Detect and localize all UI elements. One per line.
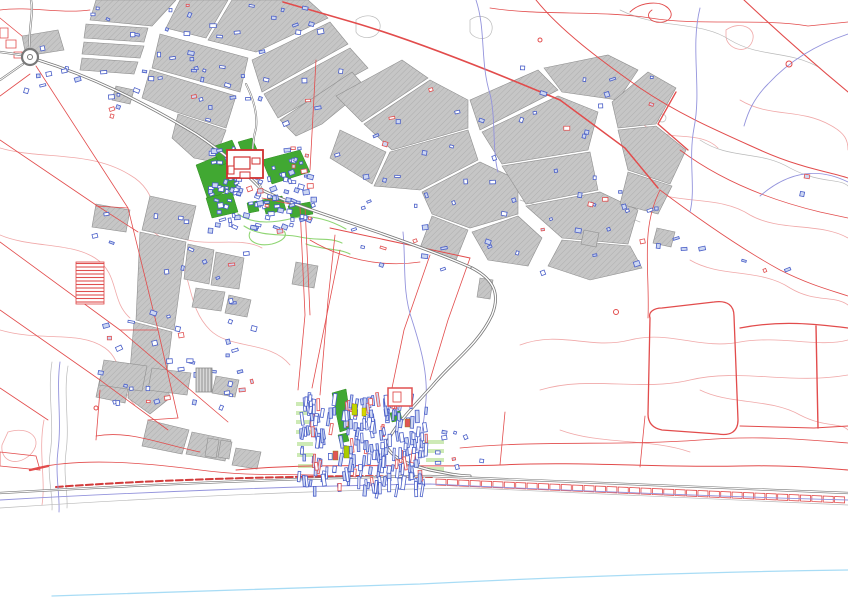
building-blue [422,150,427,155]
building-blue [410,473,414,480]
building-red [314,462,318,470]
building-blue [311,197,316,202]
building-blue [40,46,45,51]
building-red [425,434,428,442]
red-boundary [816,326,818,428]
building-blue [656,243,660,248]
building-blue [271,16,276,19]
building-blue [784,267,791,272]
gray-parcel [136,232,186,330]
building-blue [512,198,517,203]
building-blue [232,213,235,217]
building-red [110,114,114,118]
manor-wing [240,172,250,178]
building-blue [455,464,460,469]
building-blue [209,105,213,109]
building-blue [210,24,217,28]
building-blue [554,169,558,173]
building-blue [267,177,271,182]
gray-parcel [92,204,130,232]
building-blue [361,206,365,209]
building-red [369,399,373,405]
building-blue [308,395,311,401]
building-blue [258,180,263,185]
building-blue [379,263,384,268]
building-blue [158,77,162,80]
building-blue [226,354,229,357]
building-blue [165,28,169,32]
building-red [228,263,235,266]
building-red [305,99,310,102]
building-blue [368,467,372,475]
red-boundary [0,9,90,11]
building-blue [315,106,322,110]
building-blue [130,32,134,36]
building-blue [24,88,29,94]
building-blue [100,70,106,74]
building-blue [206,118,211,121]
red-boundary [430,258,470,380]
building-blue [388,478,391,491]
building-blue [212,183,218,188]
building-blue [116,401,120,406]
building-blue [349,419,352,429]
building-blue [442,430,447,434]
coast-parcel-cell [755,493,765,499]
building-blue [272,166,275,170]
layer-parcels [22,0,686,469]
building-blue [117,94,120,97]
contour-line [42,420,44,505]
gray-parcel [211,252,244,289]
building-blue [313,486,316,496]
gray-parcel [90,0,176,26]
gray-parcel [192,288,225,311]
large-red-building-inner [393,392,401,402]
manor-wing [252,158,260,164]
gray-parcel [84,24,148,42]
building-blue [415,410,419,423]
building-blue [418,451,422,458]
building-blue [422,423,427,433]
building-blue [217,161,222,164]
building-blue [192,400,196,405]
building-blue [442,435,448,440]
building-blue [329,408,333,418]
contour-line [648,190,848,238]
road-core [0,64,23,80]
coastline [52,570,848,596]
building-blue [742,259,747,262]
building-blue [142,70,147,73]
building-blue [363,174,369,179]
building-blue [480,459,484,463]
building-blue [267,195,271,199]
building-blue [382,456,385,467]
building-blue [490,180,496,184]
building-blue [178,367,184,371]
building-blue [201,77,204,82]
building-blue [283,177,288,182]
road-casing [386,268,496,476]
building-red [541,228,545,231]
building-blue [358,476,360,488]
building-red [564,126,570,130]
building-blue [515,251,519,255]
building-red [317,399,320,411]
building-blue [225,186,229,189]
building-blue [217,203,223,209]
coast-parcel-cell [778,494,788,500]
building-blue [310,414,314,421]
building-blue [284,148,291,152]
building-blue [245,97,250,100]
building-blue [492,155,497,160]
building-blue [410,416,414,428]
building-blue [241,74,245,77]
building-red [311,427,315,437]
building-blue [311,203,316,208]
red-boundary [680,150,848,218]
red-boundary [640,416,645,467]
cadastral-map-canvas[interactable] [0,0,848,599]
building-blue [225,190,228,194]
building-blue [382,178,386,182]
building-red [395,460,398,469]
building-blue [533,111,537,114]
building-blue [227,199,231,202]
roundabout-icon [22,49,38,65]
red-boundary [660,190,848,296]
gray-parcel [142,420,189,454]
building-red [186,4,189,6]
building-red [305,154,309,157]
building-red [588,202,594,207]
building-red [257,189,263,194]
building-blue [270,186,278,193]
building-blue [622,204,627,210]
building-red [640,239,646,244]
coast-parcel-cell [709,491,719,497]
building-red [250,379,253,384]
gray-parcel [82,42,144,58]
building-blue [175,326,181,332]
building-blue [98,371,104,376]
building-blue [188,51,195,56]
building-blue [115,345,122,351]
building-red [301,169,307,174]
building-blue [303,189,310,195]
building-blue [226,339,231,345]
building-blue [257,201,264,207]
building-blue [363,419,366,429]
stream [476,0,498,172]
building-blue [152,340,158,346]
building-blue [146,386,150,390]
building-blue [154,214,158,219]
building-blue [345,410,349,421]
map-viewport[interactable] [0,0,848,599]
building-blue [219,218,226,222]
greenhouse-building [76,262,104,304]
building-blue [440,267,445,271]
contour-line [540,375,848,390]
building-blue [399,433,404,443]
building-blue [317,28,324,34]
building-blue [298,184,305,190]
building-blue [191,69,196,72]
building-blue [273,196,277,201]
building-blue [133,88,140,94]
contour-line [690,260,848,305]
red-boundary [648,302,738,435]
building-blue [302,6,308,10]
building-blue [219,65,225,68]
building-blue [258,96,262,101]
building-blue [575,228,582,233]
manor-courtyard [234,157,250,169]
building-blue [96,7,99,10]
building-blue [370,444,374,452]
building-blue [232,348,239,352]
building-blue [288,179,292,184]
building-blue [224,391,230,395]
coast-parcel-cell [698,491,708,497]
building-blue [800,191,805,196]
building-blue [181,266,185,271]
red-boundary [0,28,8,38]
building-blue [360,399,363,405]
building-blue [40,84,46,88]
building-blue [268,212,274,216]
building-blue [130,387,134,390]
building-blue [619,191,622,194]
building-blue [61,69,67,74]
building-blue [425,407,428,414]
building-blue [453,431,456,434]
building-blue [157,52,160,57]
building-blue [332,466,336,472]
building-blue [361,433,364,443]
building-blue [363,485,367,496]
building-red [164,396,170,401]
building-blue [463,435,468,440]
coast-parcel-cell [721,492,731,498]
building-blue [217,148,223,152]
building-blue [128,320,135,323]
coast-parallel-line [0,488,848,508]
building-blue [91,13,95,16]
contour-line [520,337,848,345]
manor-wing [228,166,234,174]
building-blue [237,370,243,374]
building-blue [464,179,468,184]
building-blue [294,157,298,161]
building-red [107,336,111,340]
contour-line-gray [700,140,848,186]
building-blue [313,405,316,414]
building-blue [418,474,421,484]
building-blue [217,210,221,213]
building-blue [450,145,454,148]
building-blue [328,453,332,459]
building-blue [284,190,289,194]
building-red [338,483,341,490]
building-blue [338,69,343,74]
building-blue [540,270,545,276]
highlight-building [352,404,357,415]
building-blue [549,218,552,221]
building-blue [149,77,154,81]
building-blue [379,483,382,494]
building-blue [421,254,428,259]
building-blue [399,448,402,459]
building-red [239,388,245,392]
gray-parcel [225,295,251,317]
building-blue [582,134,586,139]
building-blue [455,110,460,114]
building-blue [361,246,365,249]
barn-building [196,368,212,392]
coast-parcel-cell [800,495,810,501]
gray-parcel [142,196,196,240]
building-red [277,229,283,233]
red-circle-marker [614,310,619,315]
building-blue [277,208,284,214]
building-blue [320,408,324,417]
building-blue [395,432,399,442]
building-blue [351,228,356,232]
building-blue [219,405,224,410]
building-red [376,392,381,406]
highlight-building [405,419,410,427]
building-red [382,141,388,147]
building-blue [263,78,269,82]
gray-parcel [232,448,261,469]
building-blue [379,430,382,440]
building-blue [124,384,128,387]
building-blue [650,76,653,78]
red-boundary [740,323,848,328]
building-blue [414,204,417,207]
building-blue [116,105,121,110]
building-blue [290,223,294,227]
building-blue [178,216,183,220]
building-red [389,116,395,119]
building-blue [230,96,236,100]
contour-line [700,390,848,430]
building-blue [387,466,392,474]
building-blue [281,8,284,12]
building-blue [307,174,314,180]
building-blue [366,440,369,452]
red-boundary [740,426,848,428]
building-blue [299,161,302,164]
highlight-building [362,408,366,416]
building-red [413,239,417,243]
building-blue [699,246,706,251]
building-blue [304,175,307,177]
building-blue [203,69,207,72]
building-red [109,107,115,112]
stream [690,8,700,212]
road-core [386,268,496,476]
building-red [804,174,810,179]
coast-parcel-cell [732,492,742,498]
building-blue [369,410,373,418]
building-blue [367,454,371,465]
building-blue [349,446,352,454]
building-blue [357,440,360,452]
building-blue [46,71,52,76]
building-red [178,332,184,338]
building-blue [249,202,254,205]
building-blue [414,481,417,489]
building-blue [367,200,372,203]
building-blue [393,448,396,461]
building-blue [281,172,285,177]
building-blue [211,161,216,164]
contour-line [2,430,36,461]
building-blue [421,433,424,441]
building-blue [302,78,307,83]
building-blue [243,251,249,255]
building-blue [359,465,363,471]
building-blue [384,439,387,448]
building-blue [304,397,307,407]
coast-parcel-cell [766,494,776,500]
building-red [146,400,150,402]
building-blue [217,35,223,38]
red-circle-marker [786,61,792,67]
highlight-building [333,451,338,460]
building-blue [36,74,40,78]
building-blue [218,185,222,188]
building-blue [187,359,193,363]
building-blue [395,484,399,496]
red-boundary [320,235,335,395]
building-blue [215,223,220,228]
red-boundary [0,18,22,36]
contour-line-gray [49,362,52,510]
building-blue [344,421,346,428]
building-blue [392,410,394,421]
building-blue [228,381,233,387]
building-blue [320,429,323,443]
building-blue [92,233,98,238]
building-blue [104,212,109,216]
building-blue [167,359,173,364]
building-blue [309,480,312,486]
building-blue [604,91,610,97]
building-red [307,184,313,189]
building-blue [303,454,306,461]
building-blue [593,176,596,180]
building-red [291,147,295,150]
building-blue [109,241,114,245]
red-boundary [0,388,48,420]
building-blue [414,460,419,468]
building-blue [108,95,114,100]
building-blue [167,315,171,318]
red-boundary [36,462,340,477]
building-blue [338,453,343,466]
building-blue [396,420,399,432]
building-blue [170,56,176,59]
gray-parcel [292,262,318,288]
building-blue [655,207,659,210]
building-blue [249,4,255,7]
